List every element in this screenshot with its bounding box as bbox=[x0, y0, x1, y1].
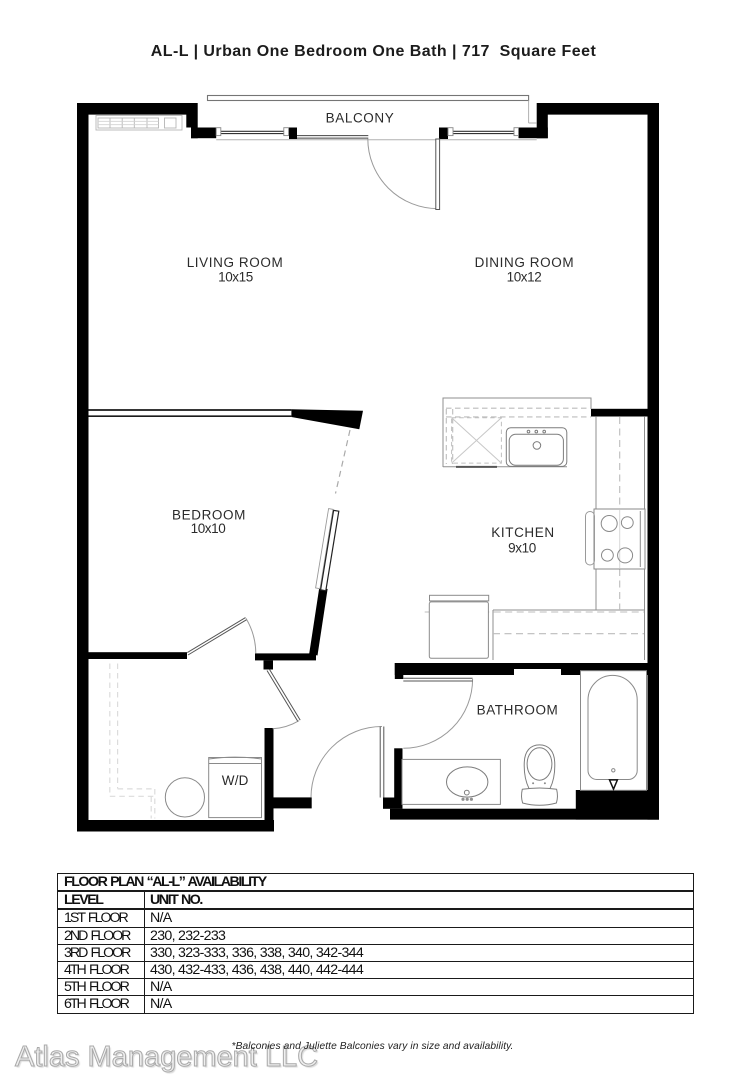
svg-text:DINING ROOM: DINING ROOM bbox=[475, 255, 575, 270]
svg-text:10x12: 10x12 bbox=[507, 269, 542, 284]
svg-text:LIVING ROOM: LIVING ROOM bbox=[187, 255, 284, 270]
svg-text:W/D: W/D bbox=[222, 773, 249, 788]
svg-text:BALCONY: BALCONY bbox=[326, 111, 395, 126]
svg-text:KITCHEN: KITCHEN bbox=[491, 525, 554, 540]
svg-text:BATHROOM: BATHROOM bbox=[477, 703, 559, 718]
svg-text:9x10: 9x10 bbox=[508, 540, 536, 555]
svg-text:10x15: 10x15 bbox=[218, 269, 253, 284]
svg-text:10x10: 10x10 bbox=[191, 521, 226, 536]
